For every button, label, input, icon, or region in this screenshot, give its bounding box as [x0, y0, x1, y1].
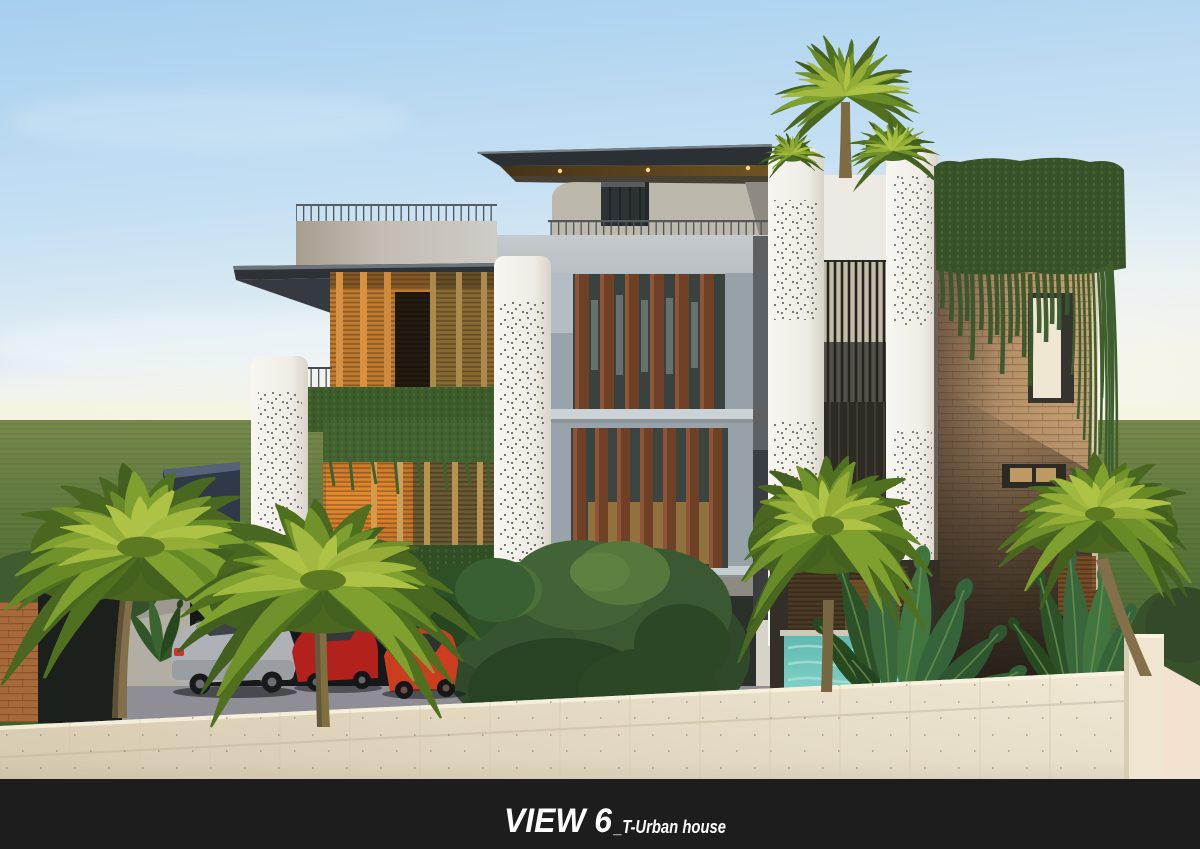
- svg-text:VIEW 6: VIEW 6: [504, 802, 613, 840]
- svg-text:_T-Urban house: _T-Urban house: [612, 817, 726, 837]
